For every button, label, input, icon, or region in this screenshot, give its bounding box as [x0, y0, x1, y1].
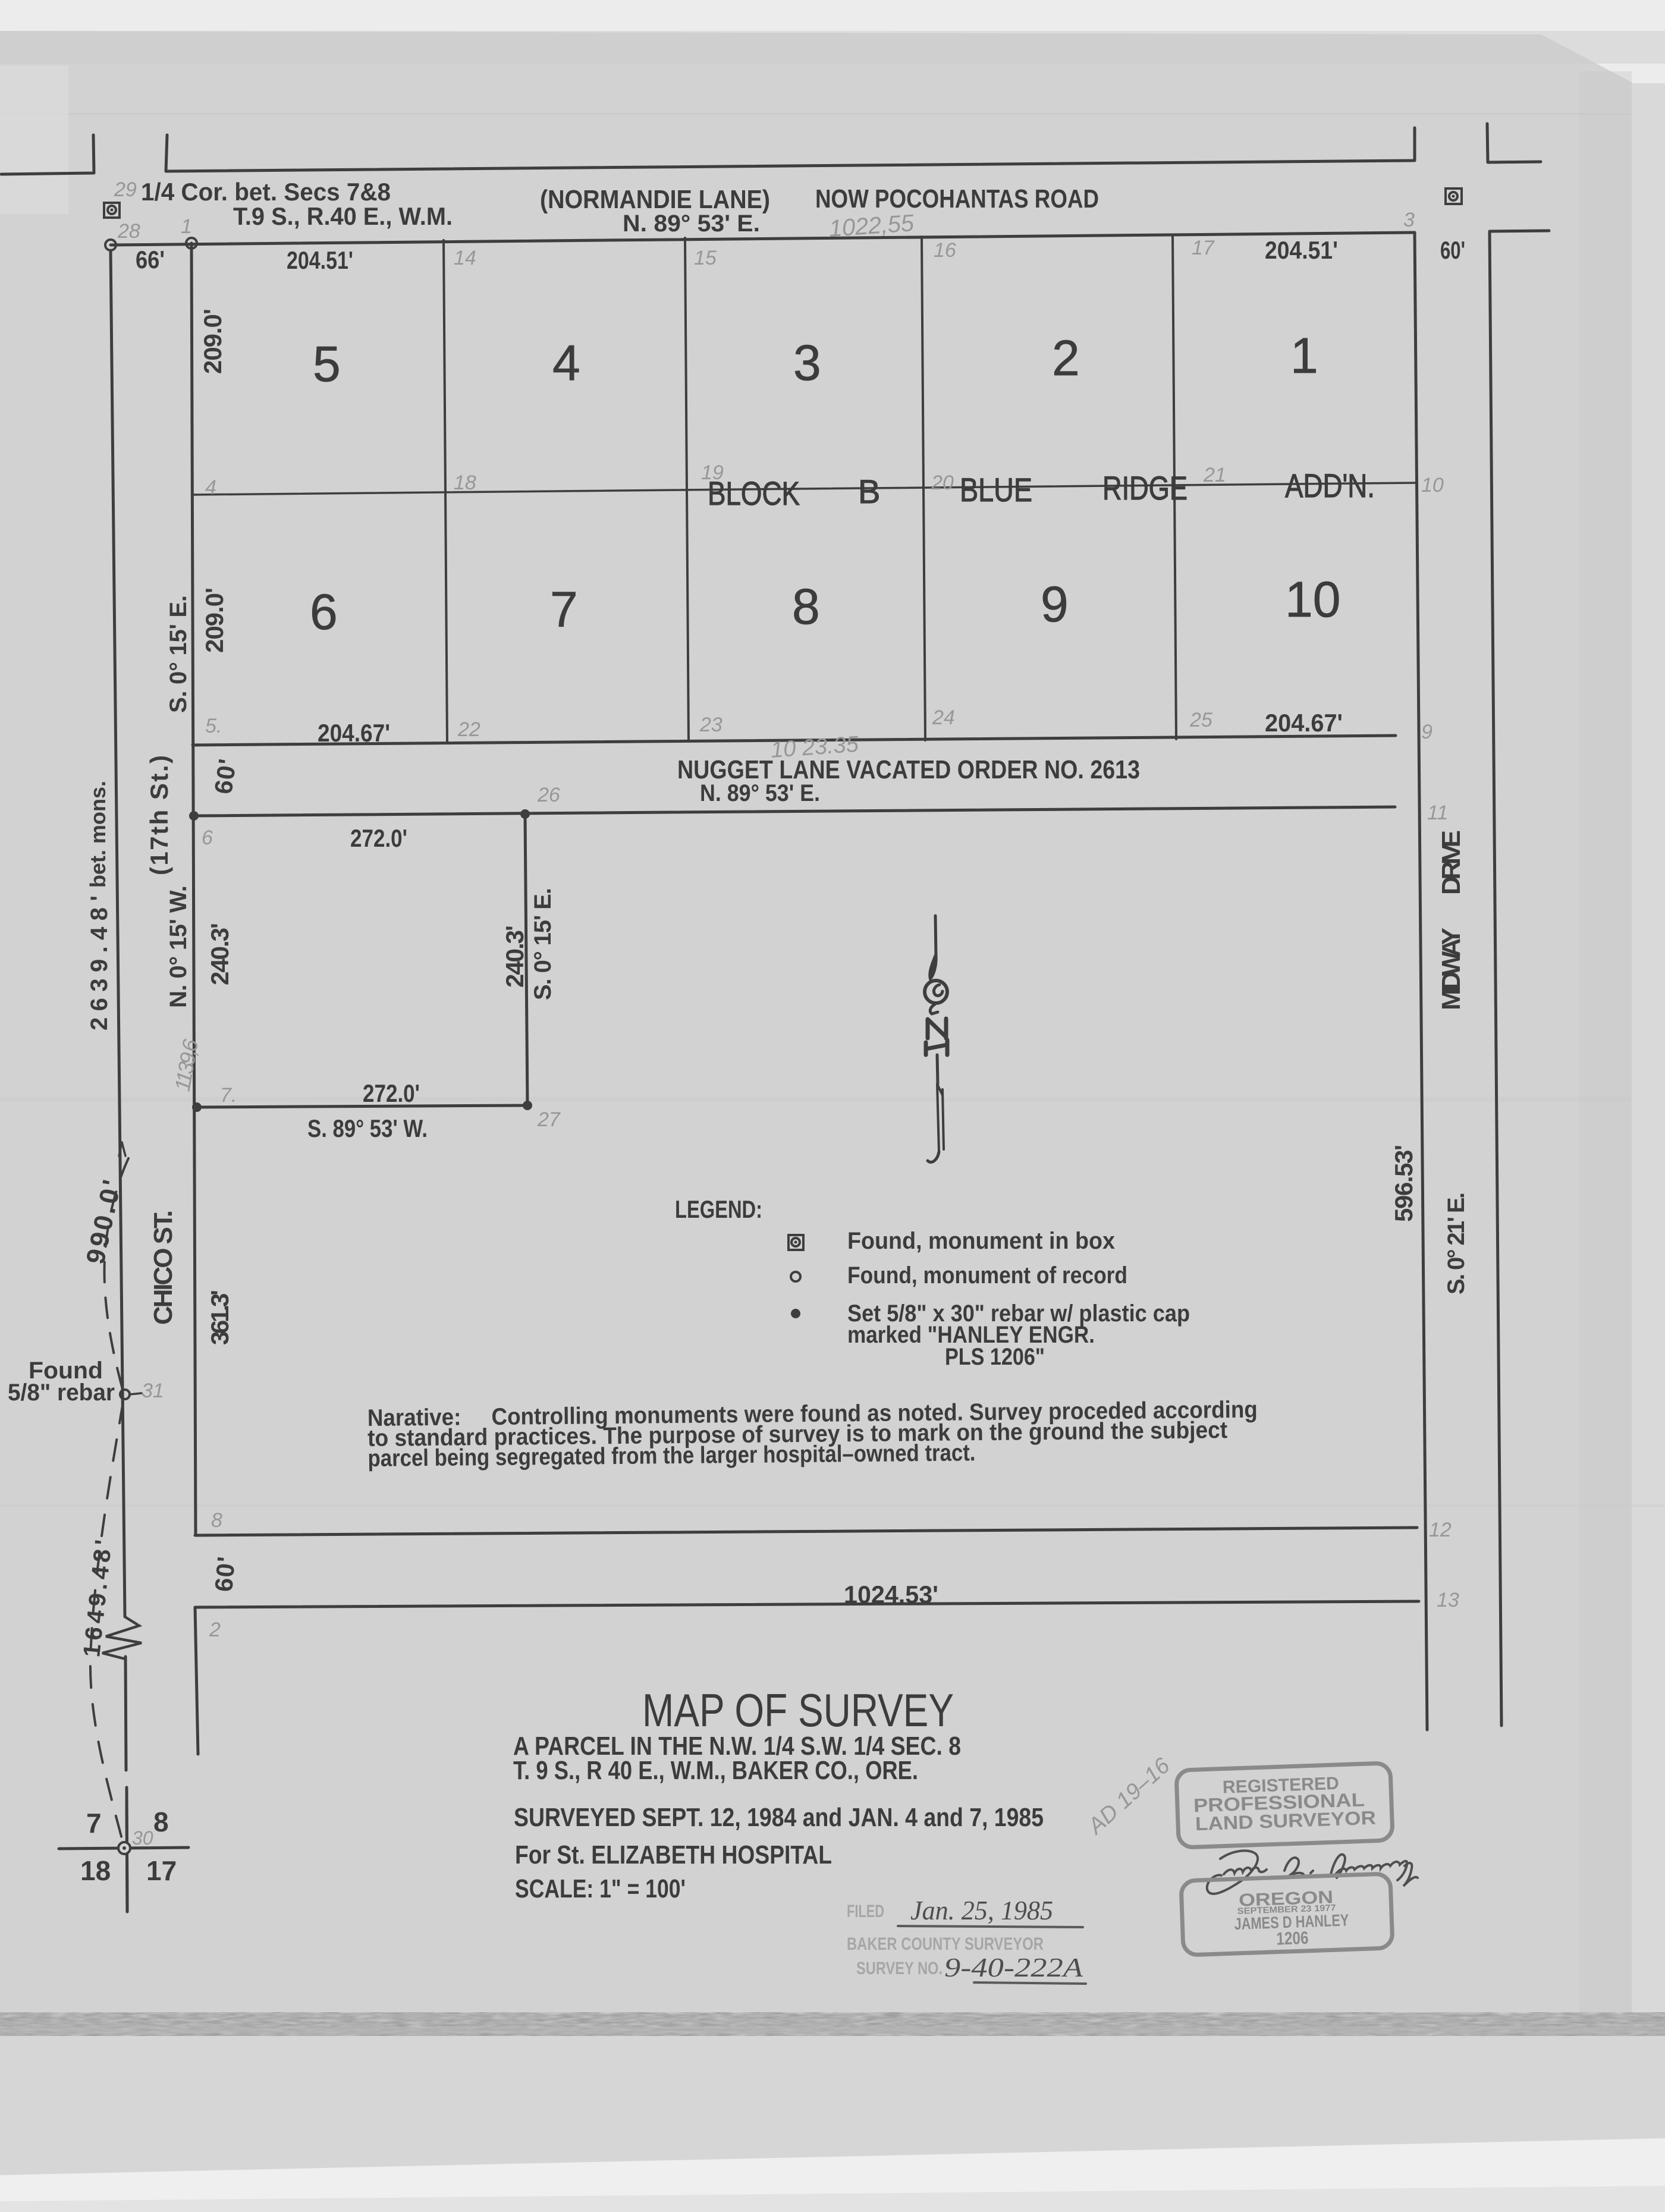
svg-text:9: 9	[1041, 576, 1069, 632]
svg-text:272.0': 272.0'	[350, 824, 407, 852]
svg-text:S. 0° 15' E.: S. 0° 15' E.	[165, 595, 191, 713]
svg-text:2: 2	[209, 1619, 221, 1641]
svg-text:27: 27	[537, 1108, 561, 1131]
svg-text:4: 4	[552, 335, 580, 391]
svg-text:S. 0° 21' E.: S. 0° 21' E.	[1443, 1192, 1469, 1294]
svg-text:16: 16	[934, 239, 956, 262]
svg-text:9: 9	[1421, 721, 1432, 743]
svg-text:N. 89° 53' E.: N. 89° 53' E.	[700, 780, 820, 806]
svg-text:19: 19	[701, 461, 724, 484]
svg-text:4: 4	[205, 476, 216, 499]
svg-text:Jan. 25, 1985: Jan. 25, 1985	[910, 1895, 1053, 1925]
svg-text:5.: 5.	[205, 715, 222, 737]
svg-text:17: 17	[146, 1855, 177, 1886]
svg-text:SURVEY NO.: SURVEY NO.	[856, 1959, 943, 1978]
svg-text:23: 23	[699, 714, 722, 736]
svg-text:204.67': 204.67'	[1265, 709, 1343, 737]
svg-text:29: 29	[114, 178, 137, 201]
svg-text:9-40-222A: 9-40-222A	[944, 1952, 1083, 1982]
svg-text:209.0': 209.0'	[199, 309, 227, 374]
svg-text:60': 60'	[209, 1556, 240, 1593]
svg-text:1: 1	[181, 215, 192, 238]
svg-text:22: 22	[457, 718, 480, 741]
svg-text:MIDWAY: MIDWAY	[1437, 928, 1466, 1010]
svg-text:5: 5	[313, 336, 341, 392]
svg-text:6: 6	[202, 827, 213, 849]
svg-text:66': 66'	[136, 246, 165, 274]
svg-text:MAP OF SURVEY: MAP OF SURVEY	[642, 1684, 954, 1736]
svg-text:S. 0° 15' E.: S. 0° 15' E.	[530, 888, 556, 1000]
svg-text:18: 18	[454, 472, 476, 494]
svg-text:26: 26	[537, 784, 560, 806]
svg-text:1024.53': 1024.53'	[844, 1581, 938, 1608]
svg-text:Found, monument in box: Found, monument in box	[847, 1228, 1115, 1254]
svg-text:204.51': 204.51'	[287, 246, 353, 274]
svg-text:8: 8	[153, 1806, 169, 1837]
svg-text:(NORMANDIE LANE): (NORMANDIE LANE)	[540, 185, 770, 214]
svg-text:14: 14	[454, 247, 476, 269]
svg-text:60': 60'	[1440, 236, 1465, 264]
svg-text:ADD'N.: ADD'N.	[1285, 467, 1375, 504]
svg-text:272.0': 272.0'	[363, 1079, 420, 1107]
svg-text:8: 8	[792, 579, 820, 634]
svg-text:N. 0° 15' W.: N. 0° 15' W.	[165, 885, 191, 1008]
svg-text:60': 60'	[209, 757, 241, 796]
svg-text:BAKER COUNTY SURVEYOR: BAKER COUNTY SURVEYOR	[847, 1934, 1044, 1954]
svg-text:7: 7	[86, 1808, 102, 1839]
svg-text:2: 2	[1052, 330, 1080, 386]
svg-text:1206: 1206	[1276, 1928, 1309, 1949]
svg-text:20: 20	[931, 472, 954, 494]
svg-text:T.9 S., R.40 E., W.M.: T.9 S., R.40 E., W.M.	[233, 202, 453, 230]
svg-text:5/8" rebar: 5/8" rebar	[8, 1380, 115, 1406]
svg-text:240.3': 240.3'	[501, 925, 529, 988]
svg-text:240.3': 240.3'	[206, 923, 234, 985]
svg-text:LEGEND:: LEGEND:	[675, 1195, 762, 1223]
svg-text:1/4 Cor. bet. Secs 7&8: 1/4 Cor. bet. Secs 7&8	[141, 178, 391, 206]
svg-text:596.53': 596.53'	[1390, 1145, 1418, 1222]
svg-text:11: 11	[1427, 802, 1448, 824]
svg-text:NOW POCOHANTAS ROAD: NOW POCOHANTAS ROAD	[815, 184, 1099, 213]
svg-text:24: 24	[932, 706, 955, 729]
svg-text:7: 7	[550, 582, 578, 637]
svg-text:B: B	[858, 473, 880, 510]
svg-text:204.67': 204.67'	[318, 719, 390, 747]
svg-text:13: 13	[1437, 1589, 1459, 1611]
svg-text:bet. mons.: bet. mons.	[86, 781, 110, 888]
svg-text:DRIVE: DRIVE	[1437, 830, 1466, 895]
svg-text:6: 6	[310, 584, 338, 640]
svg-text:FILED: FILED	[847, 1902, 884, 1921]
svg-text:SURVEYED SEPT. 12, 1984 and: SURVEYED SEPT. 12, 1984 and JAN. 4 and 7…	[514, 1803, 1044, 1832]
svg-text:209.0': 209.0'	[200, 587, 228, 653]
svg-text:7.: 7.	[220, 1084, 237, 1107]
svg-text:10: 10	[1421, 474, 1444, 497]
svg-text:RIDGE: RIDGE	[1102, 469, 1188, 507]
svg-text:BLUE: BLUE	[960, 471, 1032, 508]
svg-text:PLS 1206": PLS 1206"	[945, 1344, 1045, 1370]
svg-text:31: 31	[142, 1380, 164, 1402]
svg-text:28: 28	[117, 220, 140, 243]
svg-text:10: 10	[1285, 571, 1340, 627]
svg-text:SCALE: 1" = 100': SCALE: 1" = 100'	[515, 1874, 686, 1903]
svg-text:361.3': 361.3'	[206, 1290, 234, 1345]
svg-text:1: 1	[1290, 328, 1318, 384]
svg-text:12: 12	[1429, 1519, 1452, 1541]
svg-text:2639.48': 2639.48'	[86, 896, 112, 1030]
svg-text:N. 89° 53' E.: N. 89° 53' E.	[623, 210, 760, 237]
svg-text:T. 9 S., R 40 E., W.M., BAKER: T. 9 S., R 40 E., W.M., BAKER CO., ORE.	[513, 1756, 918, 1785]
svg-text:17: 17	[1192, 237, 1215, 259]
svg-text:8: 8	[211, 1509, 222, 1532]
svg-text:3: 3	[793, 335, 821, 391]
svg-text:21: 21	[1203, 464, 1226, 486]
svg-text:204.51': 204.51'	[1265, 236, 1338, 264]
svg-text:25: 25	[1189, 709, 1212, 731]
svg-text:30: 30	[132, 1827, 153, 1849]
svg-text:3: 3	[1403, 209, 1415, 231]
svg-text:Found, monument of record: Found, monument of record	[847, 1262, 1127, 1289]
svg-text:S. 89° 53' W.: S. 89° 53' W.	[307, 1114, 428, 1142]
svg-text:18: 18	[80, 1855, 111, 1886]
svg-text:For St. ELIZABETH HOSPITAL: For St. ELIZABETH HOSPITAL	[515, 1840, 832, 1869]
svg-text:CHICO ST.: CHICO ST.	[149, 1210, 178, 1325]
svg-text:15: 15	[694, 247, 717, 269]
